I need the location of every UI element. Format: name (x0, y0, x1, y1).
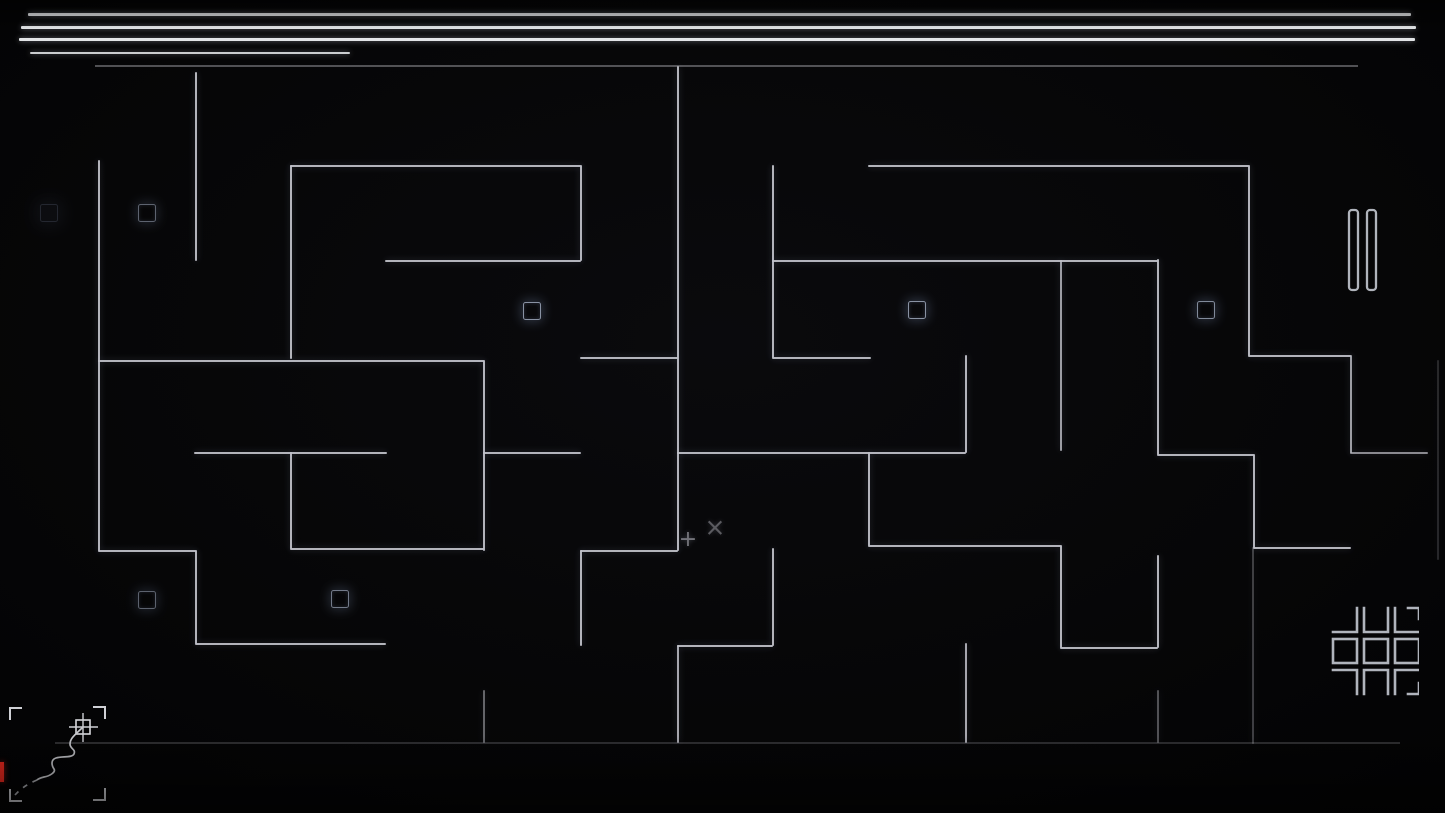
header-line (30, 52, 350, 54)
pickup-square (908, 301, 926, 319)
maze-wall (290, 165, 581, 167)
pickup-square (138, 204, 156, 222)
maze-wall (483, 452, 581, 454)
maze-wall (385, 260, 581, 262)
maze-wall (1157, 454, 1254, 456)
grid-menu-cells (1333, 608, 1419, 694)
maze-wall (1060, 260, 1062, 451)
maze-wall (677, 452, 966, 454)
maze-wall (290, 165, 292, 359)
maze-wall (772, 548, 774, 646)
maze-wall (98, 160, 100, 551)
path-trail-solid (37, 727, 83, 780)
maze-wall (580, 550, 582, 646)
maze-wall (1350, 452, 1428, 454)
maze-wall (677, 645, 679, 743)
dim-pickup-square (40, 204, 58, 222)
target-cross-marker: × (705, 515, 726, 540)
maze-wall (580, 357, 678, 359)
maze-wall (1350, 355, 1352, 453)
maze-wall (98, 360, 484, 362)
maze-wall (195, 643, 386, 645)
maze-wall (965, 643, 967, 743)
maze-wall (1248, 355, 1351, 357)
header-line (19, 38, 1415, 41)
grid-menu-icon[interactable] (1331, 606, 1419, 698)
maze-wall (483, 360, 485, 551)
maze-wall (1437, 360, 1439, 560)
game-screen: + × (0, 0, 1445, 813)
maze-wall (868, 545, 1061, 547)
maze-wall (1157, 690, 1159, 743)
maze-wall (194, 452, 387, 454)
maze-wall (290, 548, 484, 550)
maze-wall (868, 165, 1249, 167)
red-tick (0, 762, 4, 782)
maze-wall (1253, 547, 1351, 549)
maze-wall (772, 357, 871, 359)
maze-wall (1060, 545, 1062, 648)
maze-wall (290, 452, 292, 549)
maze-wall (677, 645, 773, 647)
pickup-square (331, 590, 349, 608)
maze-wall (772, 260, 1158, 262)
maze-wall (1157, 555, 1159, 648)
maze-wall (1248, 165, 1250, 356)
pause-bar-right (1367, 210, 1376, 290)
path-trail-dashed (15, 780, 37, 795)
maze-wall (1157, 259, 1159, 455)
maze-wall (868, 452, 870, 546)
pickup-square (1197, 301, 1215, 319)
maze-wall (195, 550, 197, 644)
header-line (28, 13, 1411, 16)
maze-wall (98, 550, 196, 552)
header-line (21, 26, 1416, 29)
pickup-square (138, 591, 156, 609)
pickup-square (523, 302, 541, 320)
maze-wall (483, 690, 485, 743)
maze-wall (1253, 454, 1255, 548)
maze-wall (580, 550, 678, 552)
maze-boundary (95, 65, 1358, 67)
maze-boundary (55, 742, 1400, 744)
maze-wall (580, 165, 582, 261)
pause-bar-left (1349, 210, 1358, 290)
pause-icon[interactable] (1347, 208, 1381, 294)
minimap (0, 695, 120, 813)
maze-wall (677, 66, 679, 551)
maze-wall (1060, 647, 1158, 649)
maze-wall (1252, 547, 1254, 744)
player-plus-marker: + (679, 529, 697, 551)
maze-wall (965, 355, 967, 453)
maze-wall (195, 72, 197, 261)
